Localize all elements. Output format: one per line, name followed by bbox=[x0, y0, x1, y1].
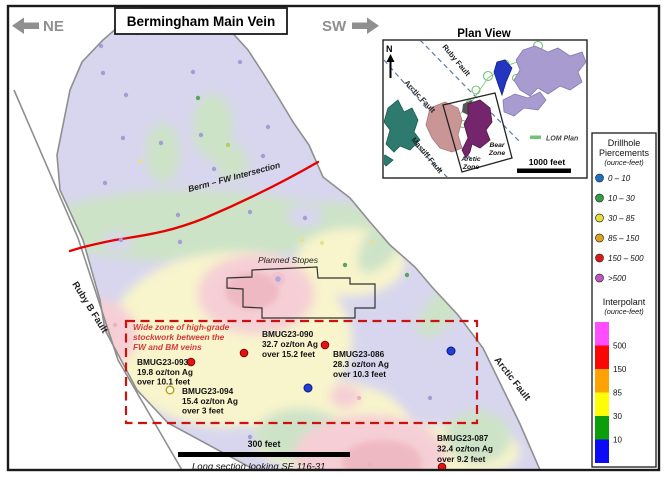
dot-bmug23-090 bbox=[240, 349, 248, 357]
svg-text:BMUG23-086: BMUG23-086 bbox=[333, 349, 385, 359]
svg-text:15.4 oz/ton Ag: 15.4 oz/ton Ag bbox=[182, 396, 238, 406]
legend-panel: Drillhole Piercements (ounce-feet) 0 – 1… bbox=[592, 133, 656, 467]
header: NE Bermingham Main Vein SW bbox=[12, 8, 379, 35]
svg-text:BMUG23-087: BMUG23-087 bbox=[437, 433, 489, 443]
interpolant-title: Interpolant bbox=[603, 297, 646, 307]
annotation-bmug23-086: BMUG23-086 28.3 oz/ton Ag over 10.3 feet bbox=[333, 349, 389, 379]
svg-text:Zone: Zone bbox=[462, 164, 479, 171]
svg-text:FW and BM veins: FW and BM veins bbox=[133, 342, 202, 352]
dot-bmug23-086 bbox=[321, 341, 329, 349]
scale-label: 300 feet bbox=[248, 439, 281, 449]
svg-text:over 10.3 feet: over 10.3 feet bbox=[333, 369, 386, 379]
svg-text:Piercements: Piercements bbox=[599, 148, 650, 158]
svg-text:85: 85 bbox=[613, 389, 622, 398]
scale-bar-rule bbox=[178, 452, 350, 457]
legend-dot-10-30 bbox=[596, 194, 604, 202]
svg-text:32.4 oz/ton Ag: 32.4 oz/ton Ag bbox=[437, 444, 493, 454]
dot-blue-right bbox=[447, 347, 455, 355]
svg-text:32.7 oz/ton Ag: 32.7 oz/ton Ag bbox=[262, 339, 318, 349]
annotation-bmug23-093: BMUG23-093 19.8 oz/ton Ag over 10.1 feet bbox=[137, 357, 193, 387]
north-label: N bbox=[386, 44, 393, 54]
title-box: Bermingham Main Vein bbox=[115, 8, 287, 34]
dot-blue-center bbox=[304, 384, 312, 392]
direction-sw-label: SW bbox=[322, 18, 347, 35]
piercements-units: (ounce-feet) bbox=[604, 158, 643, 167]
figure-title: Bermingham Main Vein bbox=[127, 14, 276, 29]
svg-text:10 – 30: 10 – 30 bbox=[608, 194, 635, 203]
dot-bmug23-093 bbox=[187, 358, 195, 366]
legend-dot-150-500 bbox=[596, 254, 604, 262]
piercements-title: Drillhole bbox=[608, 138, 641, 148]
svg-text:1000 feet: 1000 feet bbox=[529, 157, 566, 167]
svg-text:over 9.2 feet: over 9.2 feet bbox=[437, 454, 486, 464]
svg-text:0 – 10: 0 – 10 bbox=[608, 174, 631, 183]
legend-dot-85-150 bbox=[596, 234, 604, 242]
svg-text:10: 10 bbox=[613, 436, 622, 445]
dot-bmug23-094 bbox=[166, 386, 174, 394]
svg-text:30: 30 bbox=[613, 412, 622, 421]
arctic-zone-label: Arctic Zone bbox=[460, 156, 480, 171]
svg-text:>500: >500 bbox=[608, 274, 627, 283]
annotation-bmug23-087: BMUG23-087 32.4 oz/ton Ag over 9.2 feet bbox=[437, 433, 493, 464]
svg-text:30 – 85: 30 – 85 bbox=[608, 214, 635, 223]
sw-arrow-icon bbox=[352, 18, 379, 35]
svg-text:Bear: Bear bbox=[489, 142, 504, 149]
svg-text:stockwork between the: stockwork between the bbox=[133, 332, 225, 342]
svg-text:500: 500 bbox=[613, 342, 627, 351]
svg-text:over 15.2 feet: over 15.2 feet bbox=[262, 349, 315, 359]
svg-text:Zone: Zone bbox=[488, 150, 505, 157]
svg-text:150: 150 bbox=[613, 365, 627, 374]
ne-arrow-icon bbox=[12, 18, 39, 35]
svg-text:Arctic: Arctic bbox=[460, 156, 480, 163]
planned-stopes-label: Planned Stopes bbox=[258, 255, 319, 265]
interpolant-units: (ounce-feet) bbox=[604, 307, 643, 316]
legend-dot-0-10 bbox=[596, 174, 604, 182]
svg-text:19.8 oz/ton Ag: 19.8 oz/ton Ag bbox=[137, 367, 193, 377]
svg-text:85 – 150: 85 – 150 bbox=[608, 234, 640, 243]
long-section-figure: Berm – FW Intersection Planned Stopes Ru… bbox=[0, 0, 666, 477]
svg-text:150 – 500: 150 – 500 bbox=[608, 254, 644, 263]
lom-plan-swatch bbox=[530, 136, 541, 140]
svg-text:28.3 oz/ton Ag: 28.3 oz/ton Ag bbox=[333, 359, 389, 369]
svg-text:over 3 feet: over 3 feet bbox=[182, 406, 224, 416]
svg-text:BMUG23-094: BMUG23-094 bbox=[182, 386, 234, 396]
plan-view-inset: Plan View bbox=[381, 28, 587, 178]
figure: Berm – FW Intersection Planned Stopes Ru… bbox=[0, 0, 666, 477]
svg-text:BMUG23-093: BMUG23-093 bbox=[137, 357, 189, 367]
legend-dot-30-85 bbox=[596, 214, 604, 222]
bear-zone-label: Bear Zone bbox=[488, 142, 505, 157]
svg-text:BMUG23-090: BMUG23-090 bbox=[262, 329, 314, 339]
legend-dot-gt500 bbox=[596, 274, 604, 282]
purple-dot-in-stope bbox=[275, 276, 281, 282]
plan-view-title: Plan View bbox=[457, 28, 511, 40]
svg-text:over 10.1 feet: over 10.1 feet bbox=[137, 377, 190, 387]
direction-ne-label: NE bbox=[43, 18, 64, 35]
svg-text:LOM Plan: LOM Plan bbox=[546, 136, 578, 143]
svg-text:Wide zone of high-grade: Wide zone of high-grade bbox=[133, 322, 230, 332]
annotation-bmug23-090: BMUG23-090 32.7 oz/ton Ag over 15.2 feet bbox=[262, 329, 318, 359]
